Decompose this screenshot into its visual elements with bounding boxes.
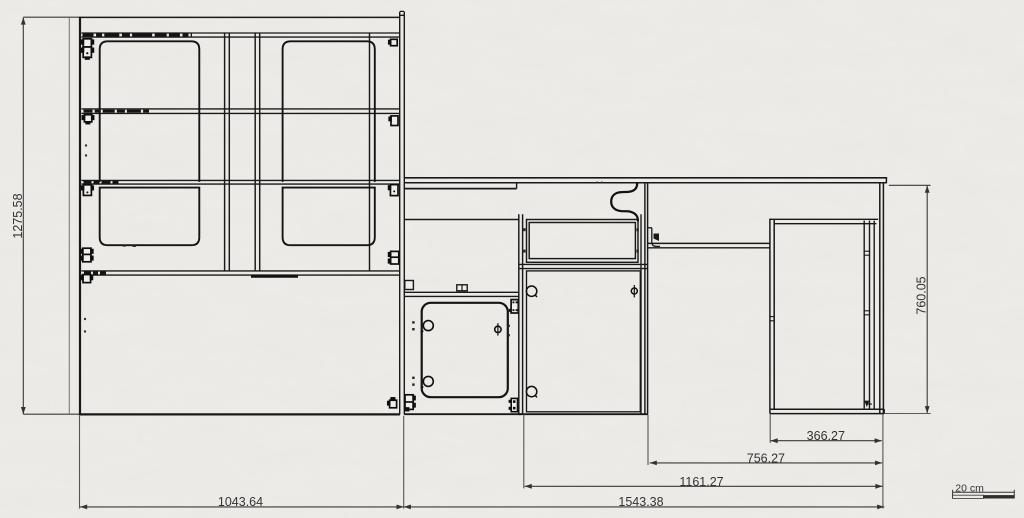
svg-text:20 cm: 20 cm <box>955 482 984 494</box>
svg-text:366.27: 366.27 <box>807 429 845 443</box>
svg-text:1043.64: 1043.64 <box>218 495 263 509</box>
svg-text:756.27: 756.27 <box>747 451 785 465</box>
svg-text:1275.58: 1275.58 <box>11 193 25 238</box>
svg-text:1161.27: 1161.27 <box>679 475 723 489</box>
svg-text:760.05: 760.05 <box>915 276 929 314</box>
svg-text:1543.38: 1543.38 <box>618 495 663 509</box>
